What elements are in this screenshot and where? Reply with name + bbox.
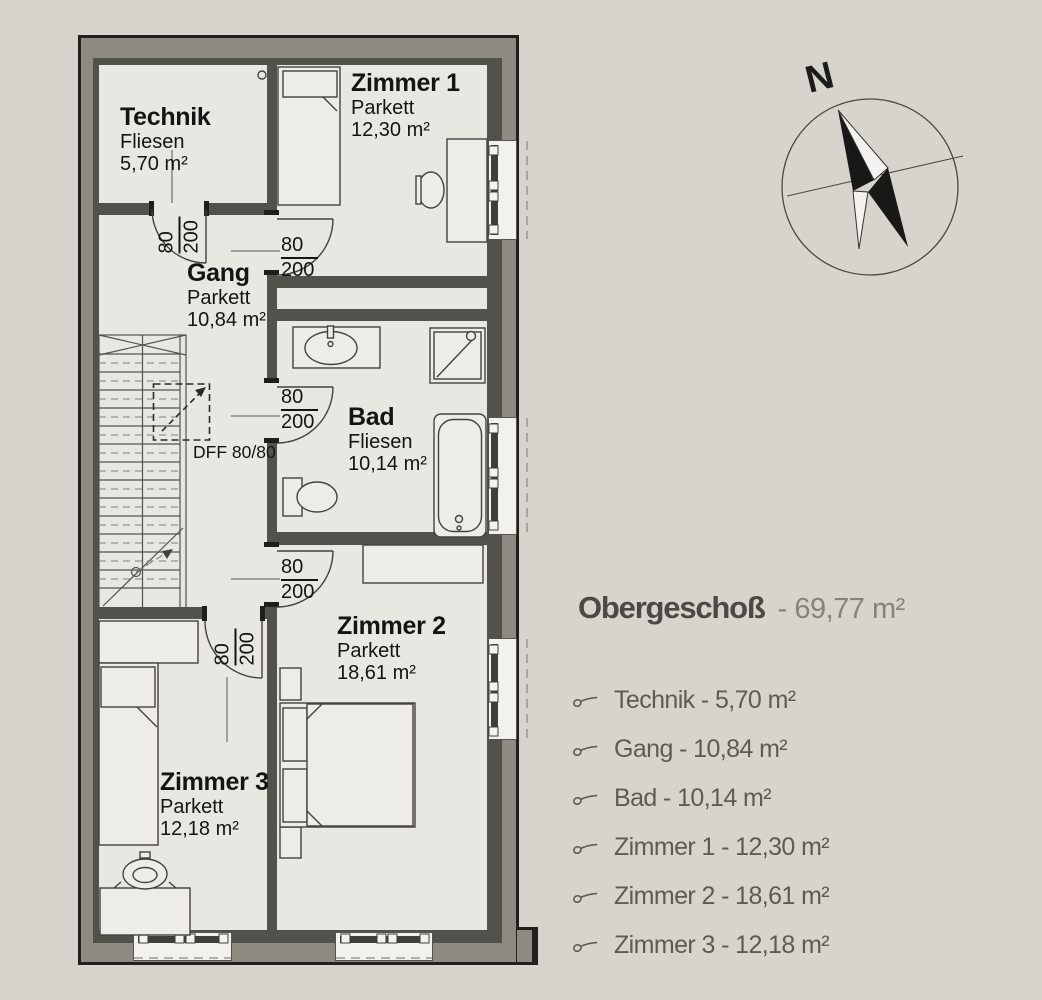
corner-bottom-right: [517, 930, 532, 962]
door-width: 80: [158, 213, 177, 254]
compass-rose: [782, 99, 963, 275]
legend-item-label: Technik - 5,70 m²: [614, 686, 796, 715]
legend-item-label: Zimmer 2 - 18,61 m²: [614, 882, 829, 911]
room-label-zimmer3: Zimmer 3 Parkett 12,18 m²: [160, 768, 269, 840]
legend-bullet-icon: [572, 839, 598, 857]
door-height: 200: [281, 583, 322, 602]
legend-item-zimmer3: Zimmer 3 - 12,18 m²: [572, 931, 829, 960]
room-label-gang: Gang Parkett 10,84 m²: [187, 259, 266, 331]
compass-circle: [782, 99, 958, 275]
floor-name: Obergeschoß: [578, 590, 765, 625]
legend-item-technik: Technik - 5,70 m²: [572, 686, 796, 715]
door-gap-bad: [267, 383, 277, 441]
legend-item-zimmer2: Zimmer 2 - 18,61 m²: [572, 882, 829, 911]
room-label-zimmer2: Zimmer 2 Parkett 18,61 m²: [337, 612, 446, 684]
legend-title: Obergeschoß- 69,77 m²: [578, 590, 905, 626]
room-name: Zimmer 1: [351, 69, 460, 98]
bad-bottom-wall: [267, 532, 487, 545]
room-area: 12,30 m²: [351, 120, 460, 142]
technik-bottom-wall-right: [206, 203, 267, 215]
bad-top-wall: [277, 309, 487, 321]
window-zimmer1: [488, 140, 517, 240]
room-name: Bad: [348, 403, 427, 432]
door-size-label-zimmer2: 80 200: [281, 558, 322, 602]
room-floor-type: Fliesen: [120, 132, 211, 154]
door-height: 200: [281, 261, 322, 280]
legend-bullet-icon: [572, 888, 598, 906]
window-zimmer2-east: [488, 638, 517, 740]
room-area: 18,61 m²: [337, 663, 446, 685]
technik-bottom-wall-left: [99, 203, 152, 215]
floor-area: [99, 65, 487, 930]
door-size-label-zimmer3: 80 200: [214, 625, 258, 666]
north-label: N: [801, 54, 838, 102]
room-name: Zimmer 2: [337, 612, 446, 641]
room-floor-type: Parkett: [160, 797, 269, 819]
legend-item-label: Bad - 10,14 m²: [614, 784, 771, 813]
room-floor-type: Parkett: [187, 288, 266, 310]
door-width: 80: [281, 236, 322, 255]
door-size-label-bad: 80 200: [281, 388, 322, 432]
window-bad: [488, 417, 517, 535]
room-area: 5,70 m²: [120, 154, 211, 176]
room-floor-type: Parkett: [351, 98, 460, 120]
room-name: Gang: [187, 259, 266, 288]
door-width: 80: [281, 388, 322, 407]
compass-needle: [838, 110, 874, 191]
door-height: 200: [239, 625, 258, 666]
room-area: 10,84 m²: [187, 310, 266, 332]
legend-item-label: Zimmer 3 - 12,18 m²: [614, 931, 829, 960]
room-label-technik: Technik Fliesen 5,70 m²: [120, 103, 211, 175]
total-area: - 69,77 m²: [778, 593, 905, 625]
legend-bullet-icon: [572, 790, 598, 808]
legend-item-label: Gang - 10,84 m²: [614, 735, 787, 764]
door-width: 80: [281, 558, 322, 577]
room-label-bad: Bad Fliesen 10,14 m²: [348, 403, 427, 475]
legend-item-label: Zimmer 1 - 12,30 m²: [614, 833, 829, 862]
door-height: 200: [281, 413, 322, 432]
floor-plan-page: Technik Fliesen 5,70 m² Zimmer 1 Parkett…: [0, 0, 1042, 1000]
legend-bullet-icon: [572, 741, 598, 759]
legend-item-zimmer1: Zimmer 1 - 12,30 m²: [572, 833, 829, 862]
door-gap-zimmer1: [267, 215, 277, 273]
door-gap-zimmer2: [267, 547, 277, 606]
legend-item-gang: Gang - 10,84 m²: [572, 735, 787, 764]
door-width: 80: [214, 625, 233, 666]
door-height: 200: [183, 213, 202, 254]
legend-item-bad: Bad - 10,14 m²: [572, 784, 771, 813]
room-floor-type: Parkett: [337, 641, 446, 663]
compass-cross-line: [787, 156, 963, 196]
door-size-label-zimmer1: 80 200: [281, 236, 322, 280]
zimmer3-top-wall-stub: [262, 607, 277, 619]
room-name: Technik: [120, 103, 211, 132]
room-area: 10,14 m²: [348, 454, 427, 476]
door-size-label-technik: 80 200: [158, 213, 202, 254]
room-label-zimmer1: Zimmer 1 Parkett 12,30 m²: [351, 69, 460, 141]
room-floor-type: Fliesen: [348, 432, 427, 454]
zimmer3-top-wall: [99, 607, 205, 619]
legend-bullet-icon: [572, 937, 598, 955]
window-zimmer2-south: [335, 932, 433, 961]
room-area: 12,18 m²: [160, 819, 269, 841]
room-name: Zimmer 3: [160, 768, 269, 797]
roof-window-label: DFF 80/80: [193, 442, 276, 463]
legend-bullet-icon: [572, 692, 598, 710]
window-zimmer3-south: [133, 932, 232, 961]
